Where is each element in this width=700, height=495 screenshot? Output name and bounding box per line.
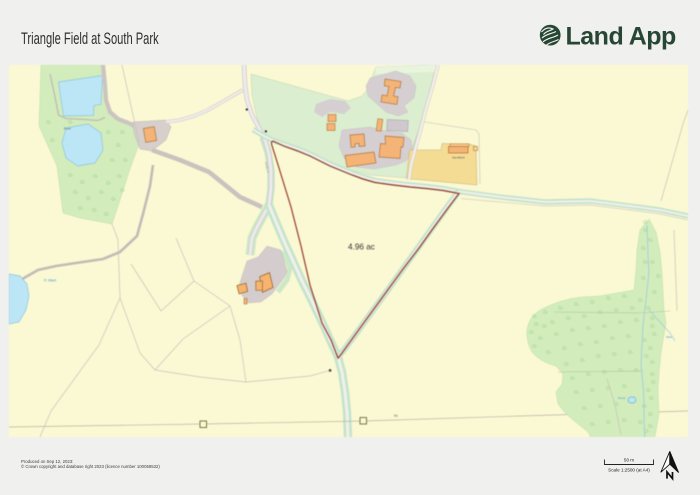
svg-text:Fb: Fb [394,414,398,418]
svg-text:50 m: 50 m [624,458,634,463]
svg-text:Land App: Land App [566,23,677,51]
svg-text:Scale 1:2500 (at A4): Scale 1:2500 (at A4) [608,468,650,473]
svg-text:Weir: Weir [666,335,672,339]
svg-text:4.96 ac: 4.96 ac [348,243,375,252]
svg-text:Sandfield: Sandfield [452,156,465,160]
svg-text:R. Wash: R. Wash [44,279,56,283]
svg-text:Pond: Pond [618,396,625,400]
svg-text:Pond: Pond [64,127,71,131]
